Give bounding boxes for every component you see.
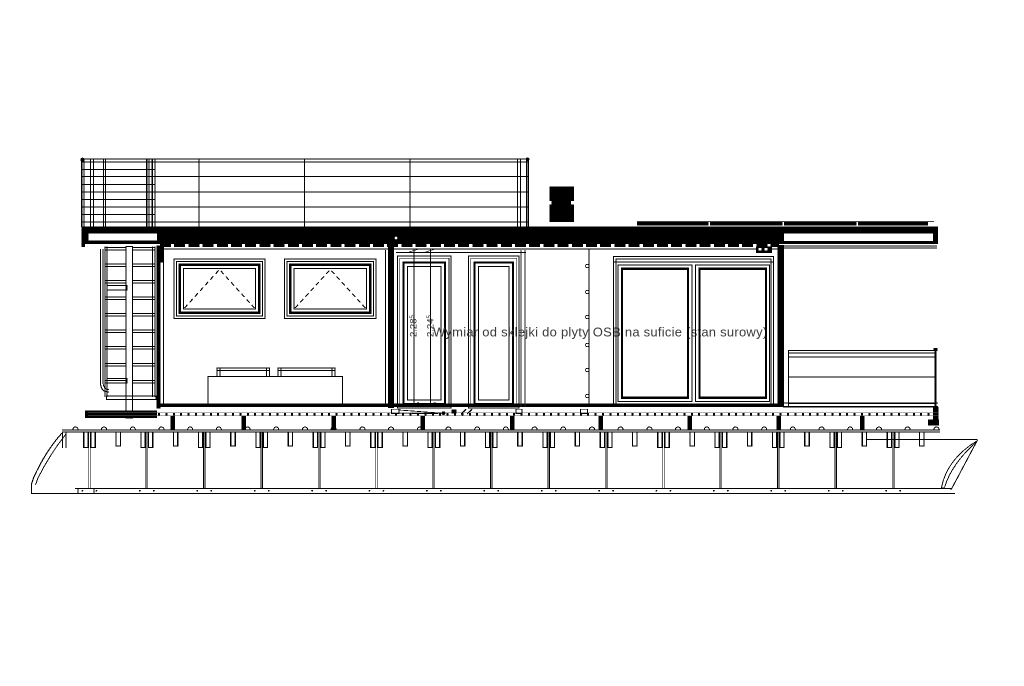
svg-text:Wymiar od sklejki do plyty OSB: Wymiar od sklejki do plyty OSB na sufici… [433, 325, 767, 340]
